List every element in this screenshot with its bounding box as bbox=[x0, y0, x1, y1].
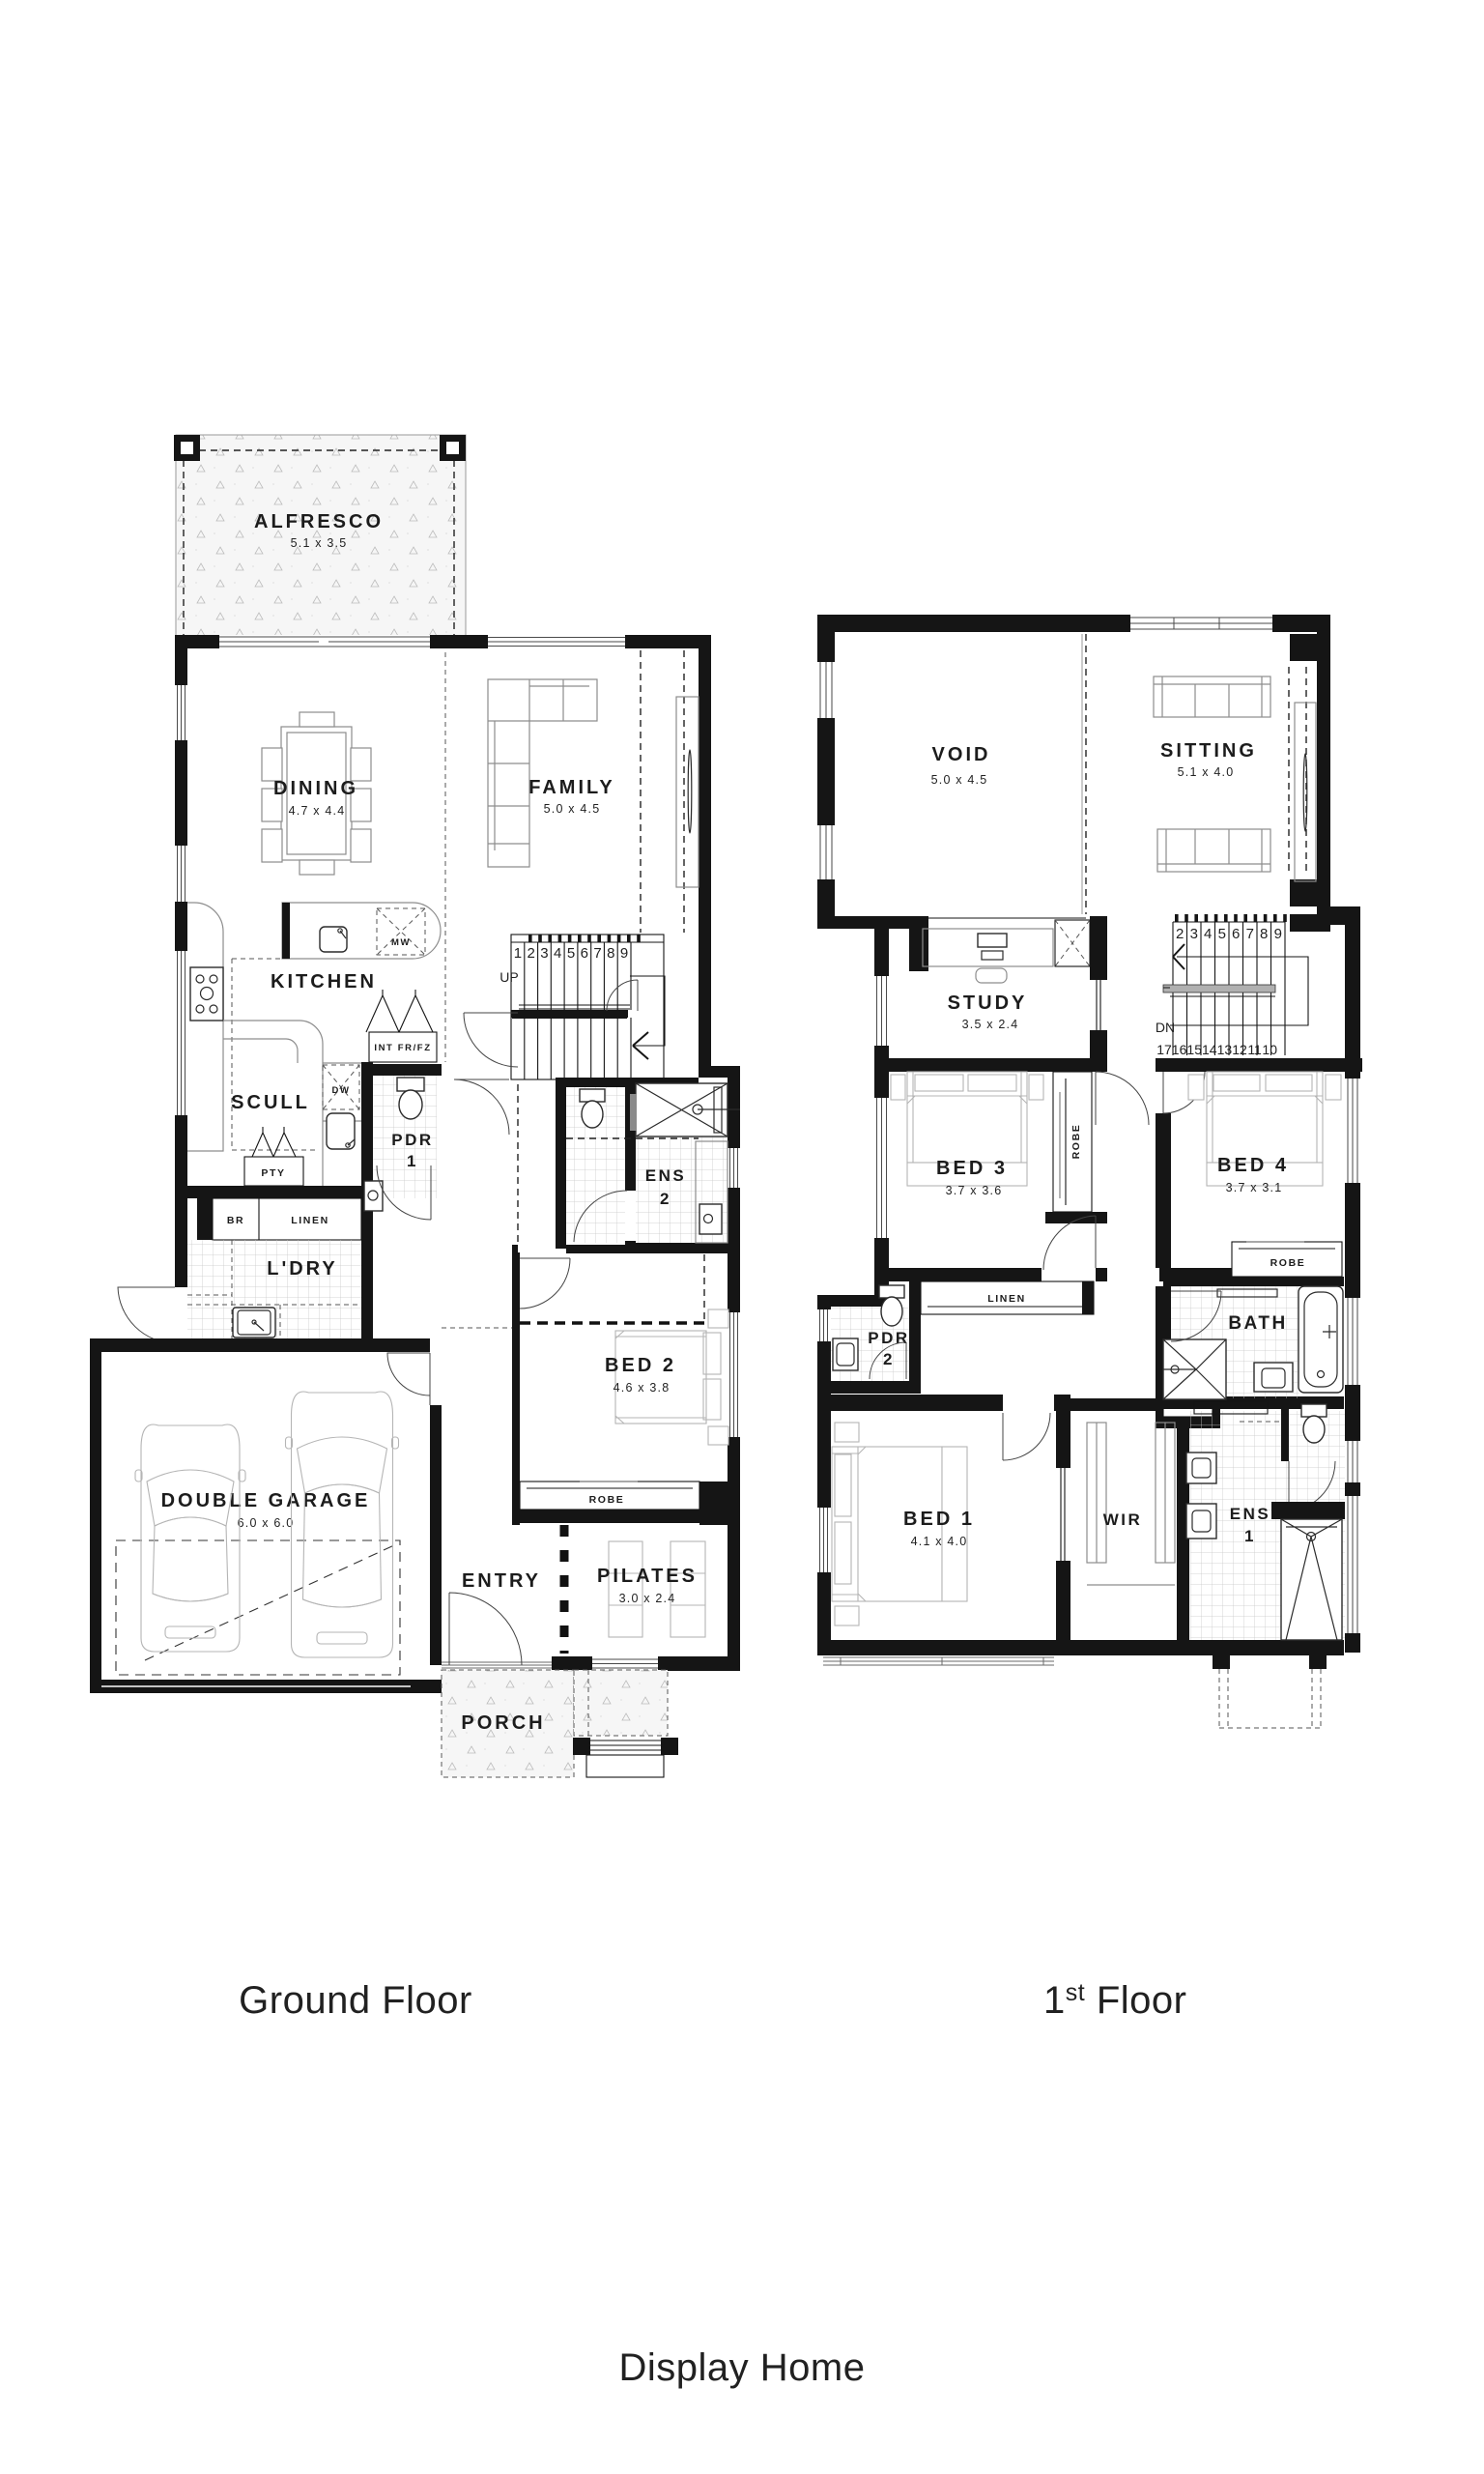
svg-text:UP: UP bbox=[499, 969, 518, 985]
svg-text:PTY: PTY bbox=[261, 1167, 285, 1179]
svg-text:9: 9 bbox=[620, 945, 628, 962]
svg-text:6: 6 bbox=[581, 945, 588, 962]
svg-text:4.7 x 4.4: 4.7 x 4.4 bbox=[289, 804, 346, 818]
svg-text:2: 2 bbox=[528, 945, 535, 962]
svg-text:DOUBLE GARAGE: DOUBLE GARAGE bbox=[161, 1490, 371, 1511]
svg-text:VOID: VOID bbox=[932, 744, 991, 765]
svg-text:11: 11 bbox=[1247, 1042, 1262, 1057]
svg-text:FAMILY: FAMILY bbox=[528, 777, 615, 798]
svg-text:17: 17 bbox=[1156, 1042, 1172, 1057]
svg-text:14: 14 bbox=[1202, 1042, 1217, 1057]
svg-text:Ground Floor: Ground Floor bbox=[239, 1979, 472, 2022]
svg-text:BED 4: BED 4 bbox=[1217, 1155, 1289, 1176]
svg-text:SITTING: SITTING bbox=[1160, 740, 1257, 762]
svg-text:5.0 x 4.5: 5.0 x 4.5 bbox=[931, 773, 988, 787]
svg-text:8: 8 bbox=[1260, 926, 1268, 942]
svg-text:BATH: BATH bbox=[1228, 1313, 1287, 1334]
svg-text:1: 1 bbox=[514, 945, 522, 962]
svg-text:KITCHEN: KITCHEN bbox=[271, 971, 377, 992]
svg-text:ROBE: ROBE bbox=[1070, 1124, 1082, 1160]
svg-text:PDR: PDR bbox=[391, 1131, 433, 1149]
svg-text:L'DRY: L'DRY bbox=[267, 1258, 337, 1280]
svg-text:BED 3: BED 3 bbox=[936, 1158, 1008, 1179]
svg-text:15: 15 bbox=[1186, 1042, 1202, 1057]
svg-text:5.1 x 3.5: 5.1 x 3.5 bbox=[291, 536, 348, 550]
svg-text:1: 1 bbox=[407, 1152, 418, 1170]
svg-text:7: 7 bbox=[593, 945, 601, 962]
svg-text:2: 2 bbox=[660, 1190, 671, 1208]
svg-text:3: 3 bbox=[1190, 926, 1198, 942]
svg-text:6.0 x 6.0: 6.0 x 6.0 bbox=[238, 1516, 295, 1530]
svg-text:4: 4 bbox=[554, 945, 561, 962]
svg-text:13: 13 bbox=[1217, 1042, 1233, 1057]
svg-text:5.1 x 4.0: 5.1 x 4.0 bbox=[1178, 765, 1235, 779]
svg-text:ENS: ENS bbox=[645, 1166, 686, 1185]
svg-text:ROBE: ROBE bbox=[1270, 1257, 1306, 1269]
svg-text:ENS: ENS bbox=[1230, 1505, 1270, 1523]
svg-text:MW: MW bbox=[391, 937, 411, 948]
svg-text:8: 8 bbox=[607, 945, 614, 962]
svg-text:3.7 x 3.6: 3.7 x 3.6 bbox=[946, 1184, 1003, 1197]
svg-text:2: 2 bbox=[883, 1350, 895, 1368]
svg-text:7: 7 bbox=[1246, 926, 1254, 942]
svg-text:4.6 x 3.8: 4.6 x 3.8 bbox=[614, 1381, 671, 1395]
svg-text:SCULL: SCULL bbox=[231, 1092, 310, 1113]
svg-text:DN: DN bbox=[1156, 1020, 1175, 1035]
svg-text:PORCH: PORCH bbox=[461, 1712, 545, 1734]
svg-text:STUDY: STUDY bbox=[948, 992, 1028, 1014]
svg-text:4: 4 bbox=[1204, 926, 1212, 942]
svg-text:PILATES: PILATES bbox=[597, 1566, 698, 1587]
svg-text:5: 5 bbox=[1218, 926, 1226, 942]
svg-text:INT FR/FZ: INT FR/FZ bbox=[374, 1043, 431, 1053]
svg-text:3.7 x 3.1: 3.7 x 3.1 bbox=[1226, 1181, 1283, 1194]
svg-text:BED 2: BED 2 bbox=[605, 1355, 676, 1376]
svg-text:3: 3 bbox=[540, 945, 548, 962]
svg-text:5: 5 bbox=[567, 945, 575, 962]
svg-text:WIR: WIR bbox=[1103, 1510, 1143, 1529]
svg-text:BED 1: BED 1 bbox=[903, 1509, 975, 1530]
svg-text:9: 9 bbox=[1274, 926, 1282, 942]
svg-text:DW: DW bbox=[331, 1085, 350, 1096]
svg-text:ALFRESCO: ALFRESCO bbox=[254, 511, 384, 532]
svg-text:16: 16 bbox=[1172, 1042, 1187, 1057]
svg-text:3.5 x 2.4: 3.5 x 2.4 bbox=[962, 1018, 1019, 1031]
svg-text:10: 10 bbox=[1262, 1042, 1277, 1057]
svg-text:1: 1 bbox=[1244, 1527, 1256, 1545]
svg-text:4.1 x 4.0: 4.1 x 4.0 bbox=[911, 1535, 968, 1548]
svg-text:ENTRY: ENTRY bbox=[462, 1570, 541, 1592]
svg-text:LINEN: LINEN bbox=[291, 1215, 329, 1226]
svg-text:2: 2 bbox=[1176, 926, 1184, 942]
svg-text:5.0 x 4.5: 5.0 x 4.5 bbox=[544, 802, 601, 816]
svg-text:3.0 x 2.4: 3.0 x 2.4 bbox=[619, 1592, 676, 1605]
svg-text:DINING: DINING bbox=[273, 778, 358, 799]
svg-text:PDR: PDR bbox=[868, 1329, 909, 1347]
svg-text:1st Floor: 1st Floor bbox=[1043, 1979, 1186, 2022]
svg-text:BR: BR bbox=[227, 1215, 244, 1226]
svg-text:12: 12 bbox=[1232, 1042, 1247, 1057]
svg-text:LINEN: LINEN bbox=[987, 1293, 1026, 1305]
svg-text:Display Home: Display Home bbox=[619, 2346, 866, 2389]
svg-text:ROBE: ROBE bbox=[589, 1494, 625, 1506]
svg-text:6: 6 bbox=[1232, 926, 1240, 942]
